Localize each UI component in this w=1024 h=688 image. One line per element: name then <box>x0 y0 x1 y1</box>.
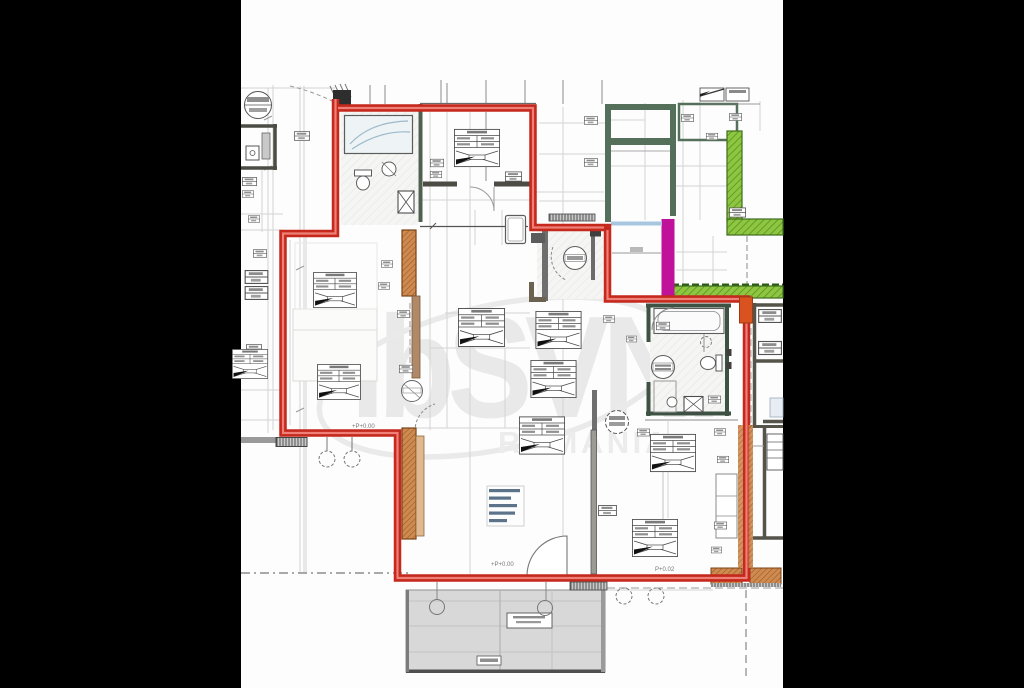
svg-text:+P+0.00: +P+0.00 <box>491 562 514 568</box>
svg-text:+P+0.00: +P+0.00 <box>352 424 375 430</box>
svg-text:P+0.02: P+0.02 <box>655 567 675 573</box>
